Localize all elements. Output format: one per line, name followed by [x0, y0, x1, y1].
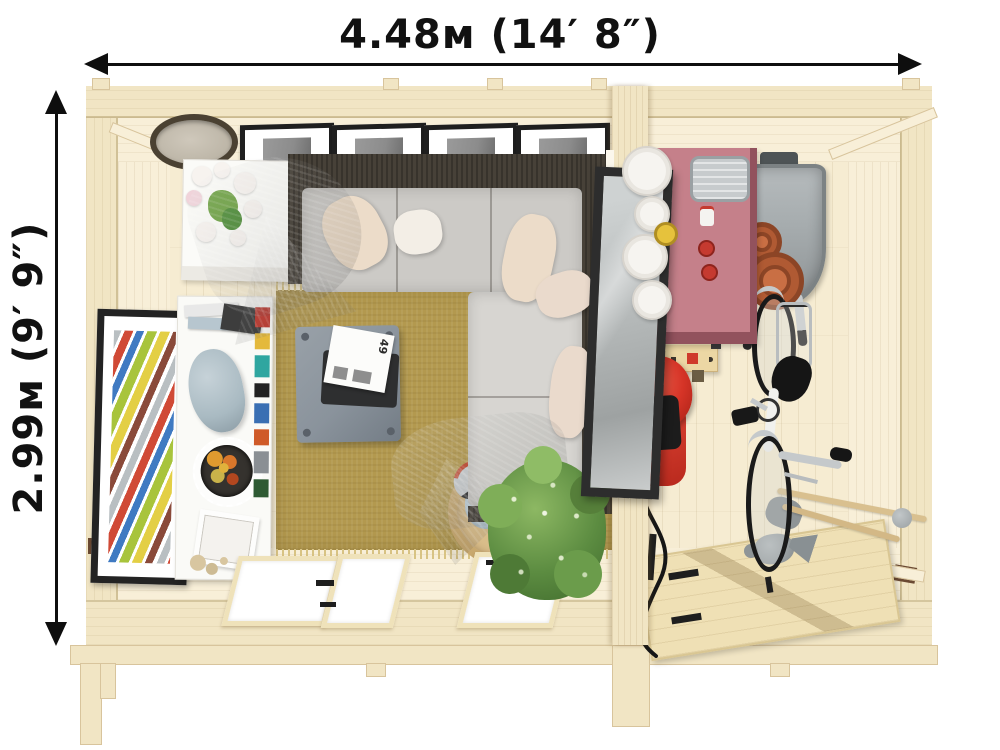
arrow-down-icon	[45, 622, 67, 646]
base-beam	[70, 645, 938, 665]
arrow-right-icon	[898, 53, 922, 75]
rope-decor	[190, 555, 206, 571]
red-bottle	[701, 264, 718, 281]
arrow-left-icon	[84, 53, 108, 75]
log-end	[383, 78, 399, 90]
base-tab	[366, 663, 386, 677]
log-end	[92, 78, 110, 90]
metal-tray	[690, 156, 750, 202]
white-pot	[622, 146, 672, 196]
log-end	[902, 78, 920, 90]
bench-leg	[692, 370, 704, 382]
width-dimension-label: 4.48м (14′ 8″)	[0, 12, 1000, 58]
white-pot	[632, 280, 672, 320]
book-spines	[253, 307, 270, 565]
red-bottle	[698, 240, 715, 257]
door-handle	[320, 602, 336, 607]
left-leg	[80, 663, 102, 745]
arrow-up-icon	[45, 90, 67, 114]
ceramic-vase	[182, 344, 252, 437]
magazine-page-number: 49	[375, 338, 390, 355]
tool-handle-cap	[892, 508, 912, 528]
width-dimension-arrow	[106, 63, 902, 66]
sofa-back	[296, 154, 612, 190]
cushion-seam	[490, 188, 492, 292]
log-end	[487, 78, 503, 90]
yellow-pot	[654, 222, 678, 246]
height-dimension-arrow	[55, 112, 58, 624]
spray-bottle	[700, 206, 714, 226]
base-tab	[770, 663, 790, 677]
art-print	[108, 330, 176, 564]
pedal	[731, 405, 760, 426]
magazine: 49	[323, 325, 394, 393]
log-end	[591, 78, 607, 90]
left-bracket	[100, 663, 116, 699]
top-wall	[86, 86, 932, 118]
door-handle	[316, 580, 334, 586]
cabin-product-render: 4.48м (14′ 8″) 2.99м (9′ 9″)	[0, 0, 1000, 750]
height-dimension-label: 2.99м (9′ 9″)	[6, 218, 50, 518]
right-wall-face	[848, 162, 900, 552]
